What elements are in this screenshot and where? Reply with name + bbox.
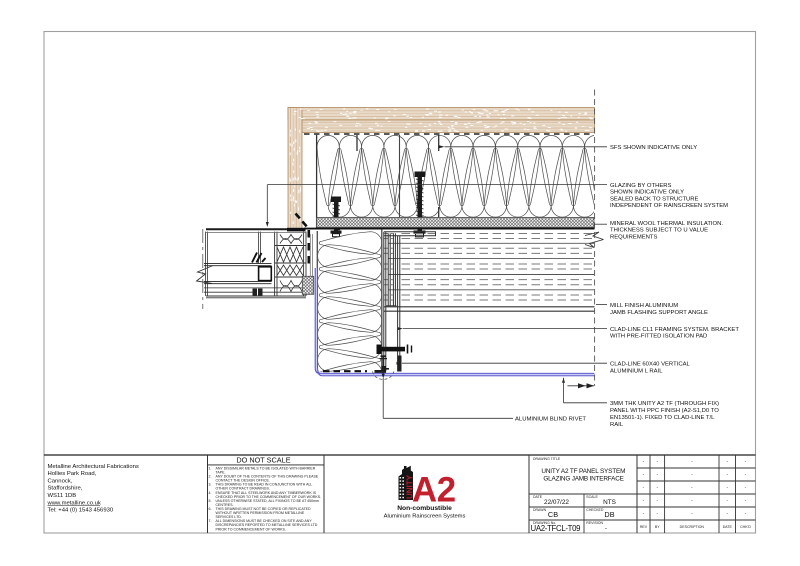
svg-text:6.: 6.	[209, 507, 212, 511]
svg-text:7.: 7.	[209, 519, 212, 523]
svg-text:MINERAL WOOL THERMAL INSULATIO: MINERAL WOOL THERMAL INSULATION.	[610, 221, 723, 227]
svg-text:UNITY A2 TF PANEL SYSTEM: UNITY A2 TF PANEL SYSTEM	[541, 468, 625, 475]
svg-text:REVISION: REVISION	[586, 521, 603, 525]
svg-text:RAIL: RAIL	[610, 422, 624, 428]
svg-text:SHOWN INDICATIVE ONLY: SHOWN INDICATIVE ONLY	[610, 190, 684, 196]
svg-text:BY: BY	[655, 525, 660, 529]
svg-text:GLAZING BY OTHERS: GLAZING BY OTHERS	[610, 183, 671, 189]
svg-text:CB: CB	[548, 510, 558, 519]
svg-text:1.: 1.	[209, 466, 212, 470]
svg-text:DATE: DATE	[723, 525, 733, 529]
svg-text:3.: 3.	[209, 483, 212, 487]
svg-text:ALUMINIUM BLIND RIVET: ALUMINIUM BLIND RIVET	[515, 416, 586, 422]
svg-text:-: -	[605, 525, 607, 532]
svg-text:SEALED BACK TO STRUCTURE: SEALED BACK TO STRUCTURE	[610, 196, 699, 202]
svg-text:SCALE: SCALE	[586, 495, 598, 499]
svg-text:GLAZING JAMB INTERFACE: GLAZING JAMB INTERFACE	[543, 476, 624, 483]
svg-text:5.: 5.	[209, 499, 212, 503]
svg-text:DESCRIPTION: DESCRIPTION	[680, 525, 705, 529]
svg-text:Aluminium Rainscreen Systems: Aluminium Rainscreen Systems	[384, 514, 466, 520]
svg-text:MILL FINISH ALUMINIUM: MILL FINISH ALUMINIUM	[610, 303, 678, 309]
svg-text:SFS SHOWN INDICATIVE ONLY: SFS SHOWN INDICATIVE ONLY	[610, 145, 697, 151]
svg-text:Hollies Park Road,: Hollies Park Road,	[48, 471, 97, 477]
svg-text:REV: REV	[640, 525, 648, 529]
svg-text:DRAWING TITLE: DRAWING TITLE	[533, 457, 561, 461]
svg-text:ANY DISSIMILAR METALS TO BE IS: ANY DISSIMILAR METALS TO BE ISOLATED WIT…	[216, 466, 316, 470]
svg-text:Non-combustible: Non-combustible	[397, 505, 452, 512]
svg-text:ALUMINIUM L RAIL: ALUMINIUM L RAIL	[610, 368, 663, 374]
svg-text:A2: A2	[412, 471, 456, 510]
svg-text:WS11 1DB: WS11 1DB	[48, 493, 77, 499]
svg-text:PANEL WITH PPC FINISH (A2-S1,D: PANEL WITH PPC FINISH (A2-S1,D0 TO	[610, 408, 719, 414]
svg-text:INDEPENDENT OF RAINSCREEN SYST: INDEPENDENT OF RAINSCREEN SYSTEM	[610, 203, 728, 209]
svg-text:Cannock,: Cannock,	[48, 478, 73, 484]
svg-text:CLAD-LINE 60X40 VERTICAL: CLAD-LINE 60X40 VERTICAL	[610, 362, 691, 368]
svg-text:EN13501-1). FIXED TO CLAD-LINE: EN13501-1). FIXED TO CLAD-LINE T/L	[610, 415, 715, 421]
svg-text:WITH PRE-FITTED ISOLATION PAD: WITH PRE-FITTED ISOLATION PAD	[610, 334, 707, 340]
svg-text:Tel: +44 (0) 1543 456930: Tel: +44 (0) 1543 456930	[48, 508, 114, 514]
svg-text:3MM THK UNITY A2 TF (THROUGH F: 3MM THK UNITY A2 TF (THROUGH FIX)	[610, 401, 719, 407]
svg-text:22/07/22: 22/07/22	[544, 499, 569, 506]
svg-text:NTS: NTS	[603, 499, 616, 506]
svg-text:Metalline Architectural Fabric: Metalline Architectural Fabrications	[48, 464, 139, 470]
svg-text:THICKNESS SUBJECT TO U VALUE: THICKNESS SUBJECT TO U VALUE	[610, 228, 708, 234]
svg-text:DRAWN: DRAWN	[533, 508, 547, 512]
svg-text:JAMB FLASHING SUPPORT ANGLE: JAMB FLASHING SUPPORT ANGLE	[610, 310, 708, 316]
svg-text:REQUIREMENTS: REQUIREMENTS	[610, 234, 658, 240]
svg-text:PRIOR TO COMMENCEMENT OF WORKS: PRIOR TO COMMENCEMENT OF WORKS.	[216, 527, 286, 531]
svg-text:CHK'D: CHK'D	[740, 525, 751, 529]
svg-text:CHECKED: CHECKED	[586, 508, 604, 512]
svg-text:DB: DB	[604, 510, 614, 519]
svg-text:4.: 4.	[209, 491, 212, 495]
svg-text:DATE: DATE	[533, 495, 543, 499]
svg-text:CLAD-LINE CL1 FRAMING SYSTEM.: CLAD-LINE CL1 FRAMING SYSTEM. BRACKET	[610, 327, 739, 333]
svg-text:UA2-TFCL-T09: UA2-TFCL-T09	[531, 524, 581, 533]
svg-text:Staffordshire,: Staffordshire,	[48, 486, 83, 492]
svg-text:DO NOT SCALE: DO NOT SCALE	[236, 455, 290, 464]
svg-text:2.: 2.	[209, 475, 212, 479]
